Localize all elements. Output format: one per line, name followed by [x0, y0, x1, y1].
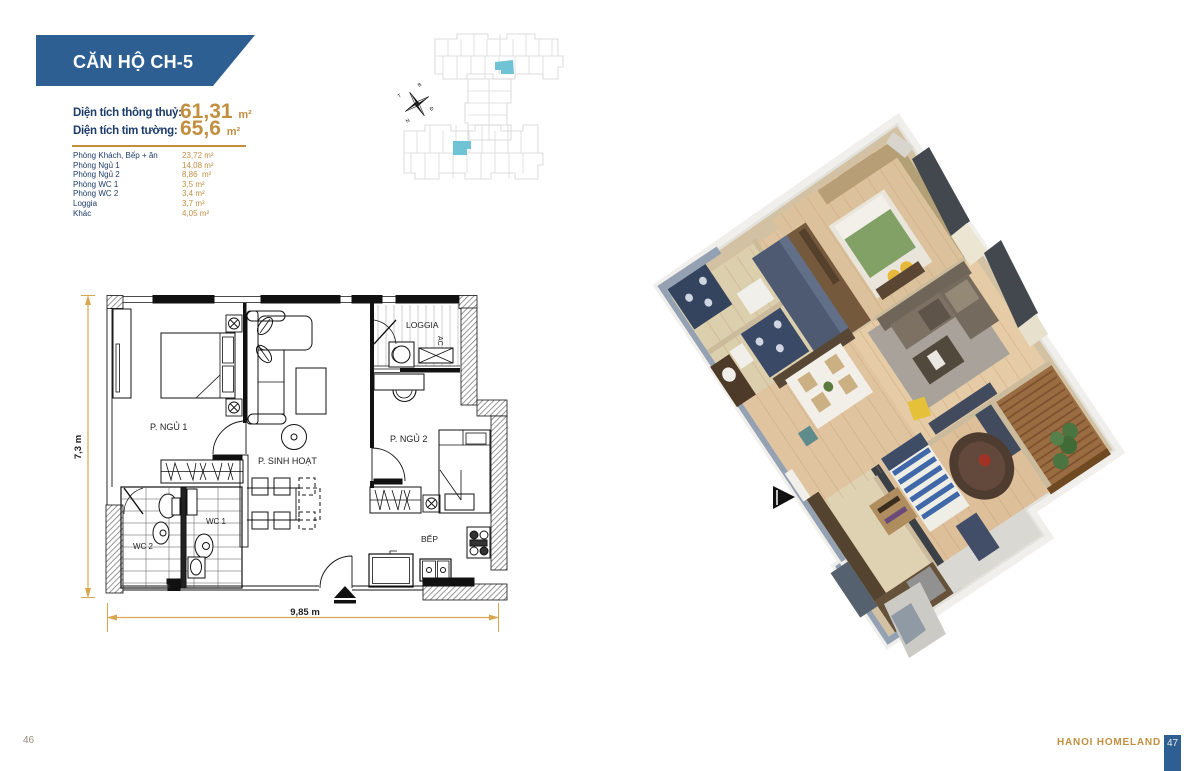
svg-text:7,3 m: 7,3 m [73, 435, 84, 459]
svg-text:P. NGỦ 1: P. NGỦ 1 [150, 421, 187, 432]
svg-text:P. NGỦ 2: P. NGỦ 2 [390, 433, 427, 444]
svg-text:P. SINH HOẠT: P. SINH HOẠT [258, 456, 317, 466]
svg-text:WC 1: WC 1 [206, 517, 227, 526]
svg-text:BẾP: BẾP [421, 534, 438, 544]
svg-text:CĂN HỘ CH-5: CĂN HỘ CH-5 [73, 51, 193, 72]
svg-text:9,85 m: 9,85 m [290, 607, 320, 618]
svg-text:LOGGIA: LOGGIA [406, 320, 439, 330]
svg-text:WC 2: WC 2 [133, 542, 154, 551]
svg-text:Đ: Đ [429, 105, 436, 112]
svg-text:AC: AC [436, 336, 443, 346]
svg-text:B: B [417, 81, 424, 88]
svg-text:T: T [397, 93, 403, 100]
svg-text:N: N [405, 117, 412, 124]
